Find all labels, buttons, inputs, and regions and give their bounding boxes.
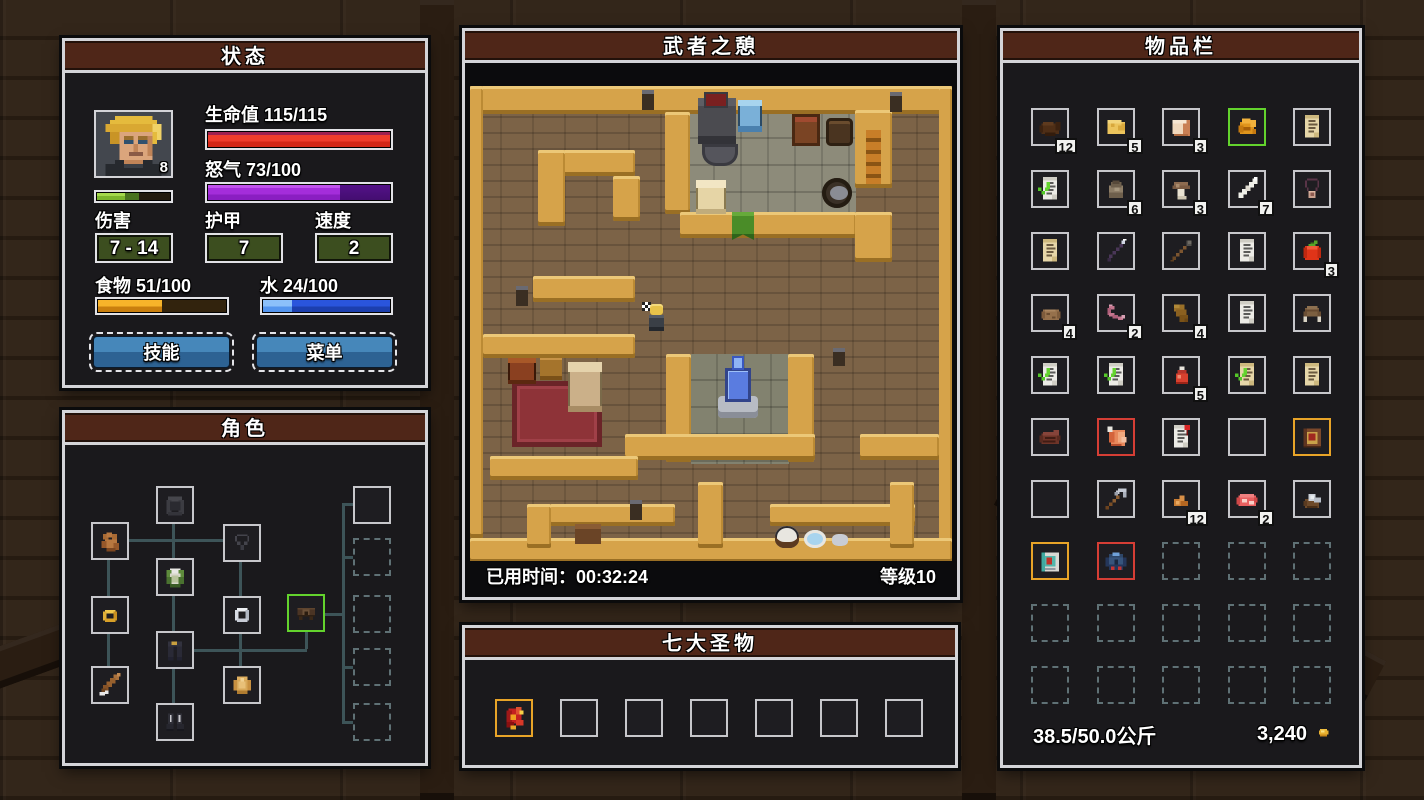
map-torch [630,500,642,520]
map-wall [939,86,952,563]
relic-slot[interactable] [625,699,663,737]
inventory-slot[interactable] [1031,604,1069,642]
fur-hat-icon [1298,299,1326,327]
wood-post [962,0,996,800]
map-table [575,524,601,544]
inventory-slot[interactable] [1031,356,1069,394]
equip-slot-extra[interactable] [353,486,391,524]
belt-icon [292,599,320,627]
inventory-slot[interactable]: 4 [1031,294,1069,332]
armor-value: 7 [205,233,283,263]
inventory-slot[interactable] [1162,542,1200,580]
inventory-slot[interactable] [1162,666,1200,704]
equipment-connector [172,668,175,703]
map-barrel [826,118,853,146]
armor-icon [1102,547,1130,575]
inventory-slot[interactable] [1097,232,1135,270]
map-nightstand [540,356,562,380]
map-mat [696,180,726,214]
necklace-icon [228,529,256,557]
map-status-bar: 已用时间：00:32:24 等级10 [470,561,952,591]
equipment-connector [305,632,308,649]
spear-icon [1167,237,1195,265]
map-wall [550,504,675,526]
equip-slot-belt[interactable] [287,594,325,632]
inventory-slot[interactable] [1293,356,1331,394]
inventory-slot[interactable]: 2 [1097,294,1135,332]
map-wall [490,456,638,480]
menu-button[interactable]: 菜单 [256,336,393,368]
inventory-slot[interactable] [1293,108,1331,146]
map-wall [680,212,856,238]
map-torch [642,90,654,110]
equipment-connector [127,539,223,542]
leather-icon [1167,299,1195,327]
cheese-icon [1102,113,1130,141]
rage-label: 怒气 73/100 [205,156,301,182]
equipment-connector [325,613,342,616]
equip-slot-hands[interactable] [91,522,129,560]
item-count: 4 [1062,324,1077,340]
inventory-slot[interactable]: 7 [1228,170,1266,208]
item-count: 3 [1324,262,1339,278]
elapsed-time: 已用时间：00:32:24 [486,563,648,589]
map-wall [665,112,690,214]
inventory-slot[interactable] [1228,108,1266,146]
glove-icon [96,527,124,555]
status-panel-title: 状态 [65,41,425,73]
ring-silver-icon [228,601,256,629]
relic-slot[interactable] [560,699,598,737]
relic-slot[interactable] [885,699,923,737]
weight-indicator: 38.5/50.0公斤 [1033,720,1156,749]
equipment-connector [107,559,110,596]
roast-icon [1233,113,1261,141]
inventory-slot[interactable] [1162,232,1200,270]
sword-icon [96,671,124,699]
equip-slot-bag-1[interactable] [353,538,391,576]
coin-icon [1314,723,1333,746]
inventory-slot[interactable] [1097,666,1135,704]
scroll-tan-icon [1298,361,1326,389]
equip-slot-head[interactable] [156,486,194,524]
item-count: 12 [1055,138,1077,154]
hide-icon [1036,113,1064,141]
inventory-slot[interactable]: 3 [1162,170,1200,208]
scroll-check-icon [1102,361,1130,389]
potato-icon [1036,299,1064,327]
map-torch [890,92,902,112]
scroll-tan-check-icon [1233,361,1261,389]
equipment-connector [342,556,353,559]
inventory-slot[interactable] [1293,480,1331,518]
inventory-slot[interactable]: 4 [1162,294,1200,332]
map-painting [792,114,820,146]
relic-slot[interactable] [755,699,793,737]
equip-slot-feet[interactable] [156,703,194,741]
item-count: 3 [1193,138,1208,154]
water-bar [260,297,393,315]
map-ladder [866,130,881,184]
rage-bar [205,182,393,203]
map-panel: 武者之憩 [462,28,960,600]
map-wall [860,434,939,460]
steak-raw-icon [1233,485,1261,513]
map-wall [855,212,892,262]
inventory-slot[interactable] [1228,232,1266,270]
map-fountain-top [732,356,744,370]
item-count: 2 [1127,324,1142,340]
player-character [650,304,663,315]
equip-slot-weapon[interactable] [91,666,129,704]
hp-bar [205,129,393,150]
scroll-tan-icon [1036,237,1064,265]
map-wall [483,334,635,358]
character-panel-title: 角色 [65,413,425,445]
pickaxe-icon [1102,485,1130,513]
inventory-slot[interactable]: 3 [1293,232,1331,270]
item-count: 5 [1193,386,1208,402]
map-wall [470,86,483,538]
equipment-area [65,448,425,763]
damage-value: 7 - 14 [95,233,173,263]
food-bar [95,297,229,315]
equip-slot-ring-left[interactable] [91,596,129,634]
inventory-slot[interactable] [1097,356,1135,394]
inventory-slot[interactable] [1097,542,1135,580]
equip-slot-bag-3[interactable] [353,648,391,686]
scroll-check-icon [1036,361,1064,389]
inventory-slot[interactable] [1162,418,1200,456]
inventory-slot[interactable] [1293,294,1331,332]
portrait-level: 8 [160,159,168,176]
inventory-slot[interactable] [1031,170,1069,208]
ham-icon [1102,423,1130,451]
equipment-connector [172,596,175,631]
item-count: 6 [1127,200,1142,216]
equipment-connector [342,721,353,724]
worm-icon [1102,299,1130,327]
inventory-grid: 125363734245122 [1003,66,1359,765]
relic-icon [499,703,529,733]
inventory-slot[interactable] [1097,418,1135,456]
scroll-white-icon [1233,299,1261,327]
map-viewport[interactable] [470,86,952,563]
map-wall [538,150,565,226]
equipment-connector [342,666,353,669]
inventory-slot[interactable] [1228,666,1266,704]
map-fountain [725,368,751,402]
item-count: 12 [1186,510,1208,526]
inventory-slot[interactable] [1228,542,1266,580]
map-wall [613,176,640,221]
boots-icon [161,708,189,736]
inventory-slot[interactable] [1031,232,1069,270]
relic-slot[interactable] [495,699,533,737]
map-cooking-pot [704,92,728,108]
inventory-slot[interactable]: 12 [1162,480,1200,518]
speed-value: 2 [315,233,393,263]
tunic-icon [161,563,189,591]
inventory-slot[interactable] [1293,542,1331,580]
pouch-icon [1102,175,1130,203]
map-torch [516,286,528,306]
damage-label: 伤害 [95,207,131,233]
item-count: 7 [1258,200,1273,216]
equipment-connector [107,633,110,666]
map-wall [533,276,635,302]
equipment-connector [239,560,242,596]
ore-icon [1298,485,1326,513]
inventory-slot[interactable] [1031,542,1069,580]
inventory-slot[interactable]: 12 [1031,108,1069,146]
inventory-slot[interactable] [1293,170,1331,208]
buckler-icon [228,671,256,699]
gold-amount: 3,240 [1257,723,1307,746]
equip-slot-bag-4[interactable] [353,703,391,741]
status-panel: 状态 8 生命值 115/115 怒气 73/100 伤害 护甲 速度 7 - … [62,38,428,388]
inventory-slot[interactable] [1228,356,1266,394]
map-pot [775,526,799,548]
player-body [649,315,664,331]
map-oven-arch [702,144,738,166]
map-panel-title: 武者之憩 [465,31,957,63]
inventory-slot[interactable]: 5 [1162,356,1200,394]
scroll-pin-icon [1167,423,1195,451]
character-panel: 角色 [62,410,428,766]
relics-grid [465,663,955,765]
hood-icon [161,491,189,519]
inventory-panel-title: 物品栏 [1003,31,1359,63]
equip-slot-chest[interactable] [156,558,194,596]
amulet-icon [1298,175,1326,203]
inventory-slot[interactable] [1293,418,1331,456]
map-wall [698,482,723,548]
steak-cooked-icon [1036,423,1064,451]
relics-panel: 七大圣物 [462,625,958,768]
map-wall [625,434,815,460]
item-count: 4 [1193,324,1208,340]
wand-icon [1102,237,1130,265]
ring-gold-icon [96,601,124,629]
inventory-slot[interactable] [1031,666,1069,704]
equip-slot-ring-right[interactable] [223,596,261,634]
food-label: 食物 51/100 [95,272,191,298]
scroll-white-icon [1233,237,1261,265]
inventory-slot[interactable] [1097,604,1135,642]
inventory-slot[interactable]: 2 [1228,480,1266,518]
inventory-slot[interactable] [1031,480,1069,518]
speed-label: 速度 [315,207,351,233]
equip-slot-bag-2[interactable] [353,595,391,633]
potion-icon [1167,361,1195,389]
pants-icon [161,636,189,664]
mushroom-icon [1167,175,1195,203]
skills-button[interactable]: 技能 [93,336,230,368]
inventory-slot[interactable] [1228,418,1266,456]
map-bed [568,362,602,412]
xp-bar [94,190,173,203]
item-count: 2 [1258,510,1273,526]
armor-label: 护甲 [205,207,241,233]
map-torch [833,348,845,366]
relic-slot[interactable] [820,699,858,737]
scroll-tan-icon [1298,113,1326,141]
game-screen: 状态 8 生命值 115/115 怒气 73/100 伤害 护甲 速度 7 - … [0,0,1424,800]
character-portrait: 8 [94,110,173,178]
map-wall [527,504,551,548]
inventory-slot[interactable] [1031,418,1069,456]
map-bowl [832,534,848,546]
equip-slot-legs[interactable] [156,631,194,669]
inventory-panel: 物品栏 125363734245122 38.5/50.0公斤 3,240 [1000,28,1362,768]
inventory-slot[interactable]: 3 [1162,108,1200,146]
relics-panel-title: 七大圣物 [465,628,955,660]
book-teal-icon [1036,547,1064,575]
item-count: 3 [1193,200,1208,216]
map-wall [890,482,914,548]
inventory-slot[interactable] [1228,604,1266,642]
inventory-slot[interactable] [1228,294,1266,332]
map-water-cooler [738,100,762,132]
inventory-slot[interactable] [1293,604,1331,642]
equipment-connector [193,649,307,652]
equipment-connector [342,503,353,506]
inventory-slot[interactable] [1162,604,1200,642]
map-level: 等级10 [880,563,936,589]
book-brown-icon [1298,423,1326,451]
nuggets-icon [1167,485,1195,513]
inventory-slot[interactable]: 6 [1097,170,1135,208]
water-label: 水 24/100 [260,272,338,298]
hp-label: 生命值 115/115 [205,101,327,127]
scroll-check-icon [1036,175,1064,203]
item-count: 5 [1127,138,1142,154]
map-chest [508,358,536,384]
tomato-icon [1298,237,1326,265]
map-tub-water [830,186,848,200]
equipment-connector [342,503,345,722]
inventory-slot[interactable] [1097,480,1135,518]
bread-icon [1167,113,1195,141]
equip-slot-offhand[interactable] [223,666,261,704]
inventory-slot[interactable]: 5 [1097,108,1135,146]
map-basin [804,530,826,548]
equip-slot-neck[interactable] [223,524,261,562]
bone-icon [1233,175,1261,203]
relic-slot[interactable] [690,699,728,737]
inventory-slot[interactable] [1293,666,1331,704]
